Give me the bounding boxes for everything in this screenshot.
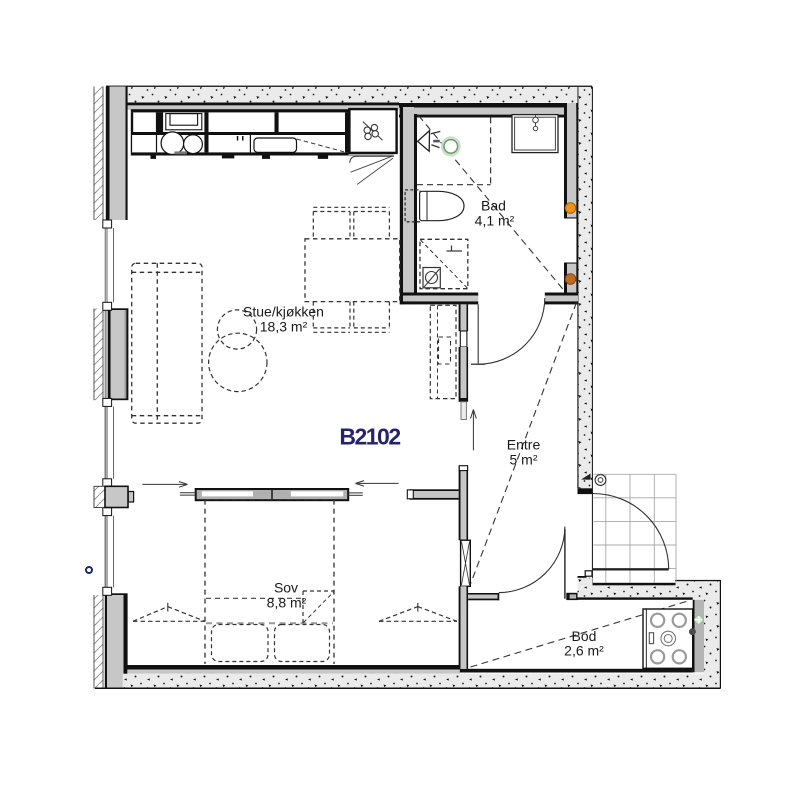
svg-text:4,1 m²: 4,1 m² <box>475 213 515 229</box>
svg-text:B2102: B2102 <box>339 424 400 450</box>
svg-text:2,6 m²: 2,6 m² <box>564 643 604 659</box>
svg-text:5 m²: 5 m² <box>510 452 538 468</box>
svg-text:Bad: Bad <box>481 198 506 214</box>
svg-text:8,8 m²: 8,8 m² <box>267 595 307 611</box>
svg-text:Sov: Sov <box>274 580 298 596</box>
svg-text:18,3 m²: 18,3 m² <box>260 319 308 335</box>
svg-text:Entre: Entre <box>507 437 541 453</box>
svg-text:Stue/kjøkken: Stue/kjøkken <box>243 304 324 320</box>
